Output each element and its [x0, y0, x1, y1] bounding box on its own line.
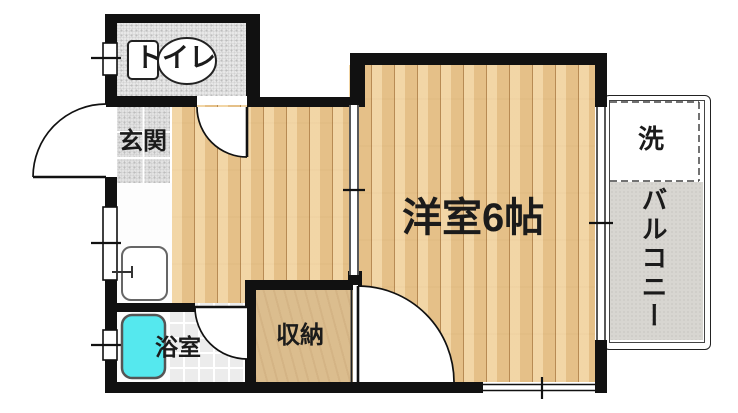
bathroom-label: 浴室 — [155, 336, 201, 359]
wall-segment — [350, 53, 607, 65]
wall-segment — [105, 23, 117, 43]
window-box — [103, 207, 117, 280]
door-arc — [33, 104, 106, 177]
wall-segment — [245, 280, 353, 290]
wall-segment — [595, 340, 607, 393]
wall-segment — [245, 290, 256, 382]
wall-segment — [246, 23, 260, 96]
wall-segment — [260, 97, 355, 107]
wall-segment — [105, 14, 260, 23]
closet-label: 収納 — [276, 324, 324, 348]
wall-segment — [105, 96, 197, 107]
wall-segment — [105, 303, 195, 312]
balcony-label: バルコニー — [640, 186, 666, 331]
kitchen-counter-area — [117, 183, 173, 312]
wall-segment — [105, 360, 117, 382]
door-swing — [33, 104, 106, 177]
wall-segment — [348, 271, 362, 290]
wall-segment — [595, 65, 607, 107]
wall-segment — [105, 75, 117, 96]
toilet-label: トイレ — [135, 45, 216, 72]
wall-segment — [105, 382, 483, 393]
entrance-label: 玄関 — [119, 130, 167, 154]
window-channel — [483, 382, 595, 393]
wall-segment — [247, 96, 260, 107]
wall-segment — [105, 177, 117, 207]
main-room-label: 洋室6帖 — [402, 198, 544, 238]
washer-area-label: 洗 — [638, 126, 664, 152]
floor-plan: トイレ 玄関 浴室 収納 洋室6帖 洗 バルコニー — [0, 0, 738, 413]
entrance-door — [33, 104, 106, 177]
